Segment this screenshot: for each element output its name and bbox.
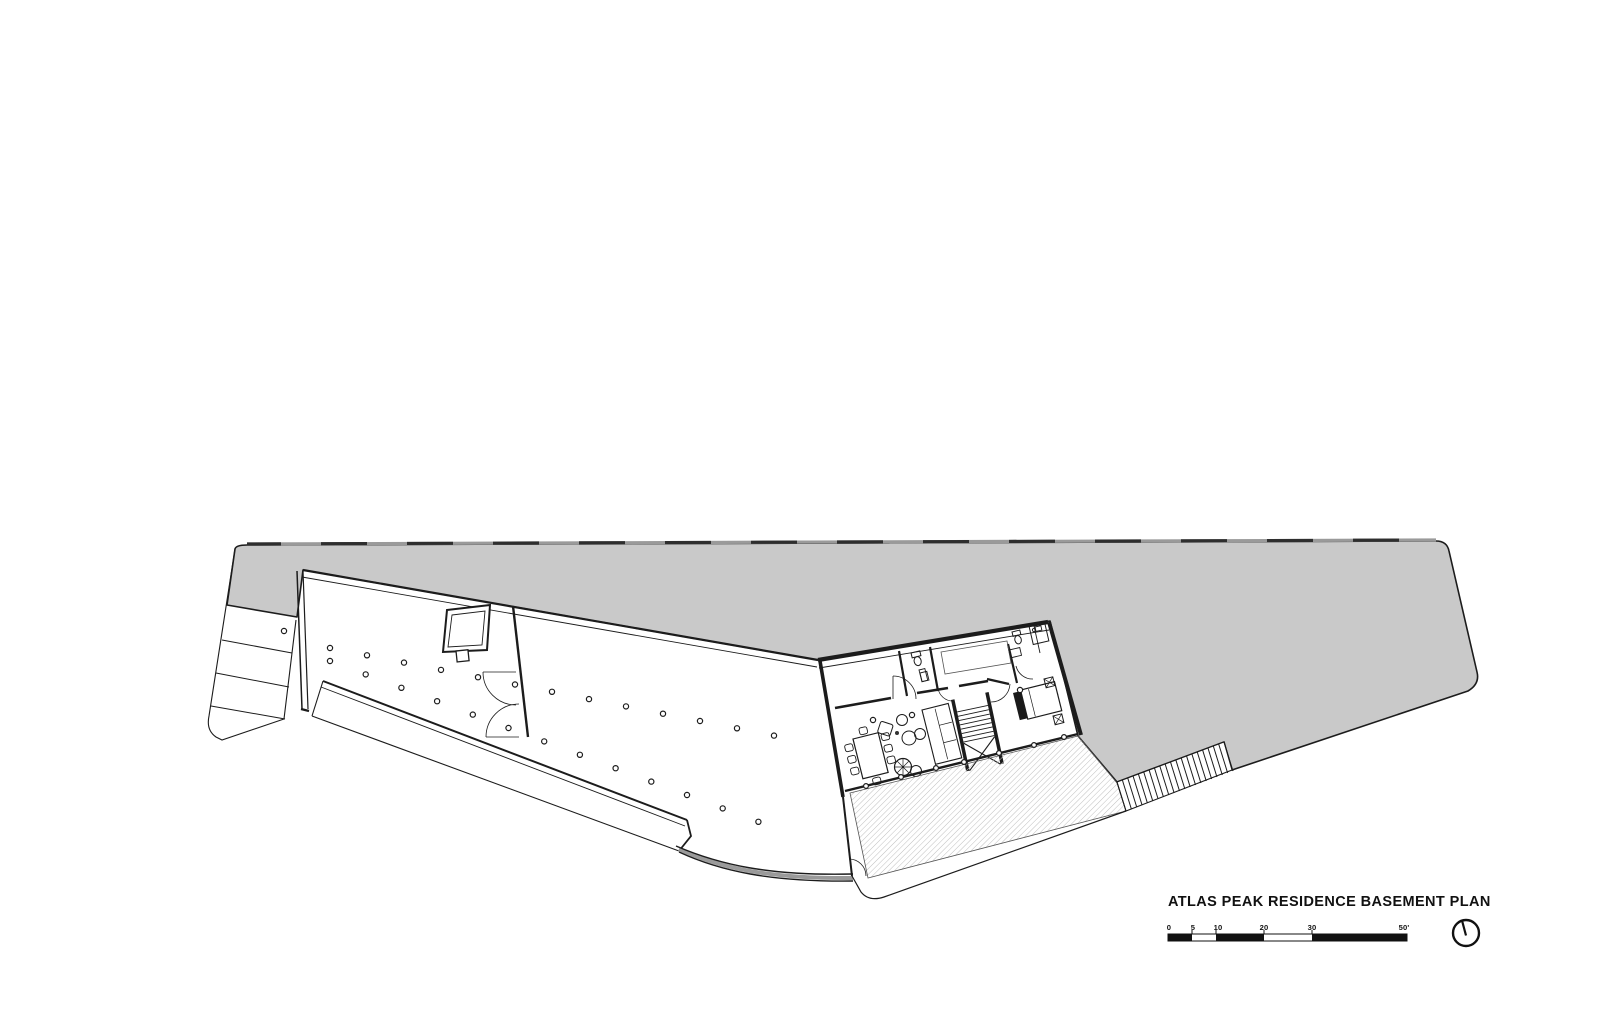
column-dot xyxy=(281,628,286,633)
column-dot xyxy=(586,697,591,702)
column-dot xyxy=(475,675,480,680)
column-dot xyxy=(771,733,776,738)
column-dot xyxy=(870,717,875,722)
living-left-wall xyxy=(820,661,843,797)
column-dot xyxy=(899,775,904,780)
scale-label-10: 10 xyxy=(1214,923,1223,932)
scale-label-5: 5 xyxy=(1191,923,1196,932)
column-dot xyxy=(470,712,475,717)
deck-left-wall xyxy=(843,797,852,876)
partition xyxy=(899,651,907,696)
scale-label-30: 30 xyxy=(1308,923,1317,932)
scale-bar: 0 5 10 20 30 50' xyxy=(1167,923,1410,941)
square-room xyxy=(443,605,490,662)
column-dot xyxy=(660,711,665,716)
floor-plan-drawing: ATLAS PEAK RESIDENCE BASEMENT PLAN 0 5 1… xyxy=(0,0,1600,1035)
column-dot xyxy=(1017,687,1022,692)
column-dot xyxy=(734,726,739,731)
column-dot xyxy=(363,672,368,677)
column-dot xyxy=(401,660,406,665)
column-dot xyxy=(613,766,618,771)
column-dot xyxy=(909,712,914,717)
toilet xyxy=(1012,630,1023,645)
column-dot xyxy=(542,739,547,744)
bench xyxy=(919,669,928,682)
column-dot xyxy=(506,725,511,730)
toilet xyxy=(911,651,923,667)
column-dot xyxy=(756,819,761,824)
curved-corner-wall xyxy=(676,846,853,881)
column-dot xyxy=(720,806,725,811)
column-dot xyxy=(997,751,1002,756)
column-dot xyxy=(399,685,404,690)
scale-label-50: 50' xyxy=(1399,923,1410,932)
terrace-line xyxy=(222,640,292,653)
dining-table xyxy=(853,733,888,779)
column-dot xyxy=(1062,735,1067,740)
corridor-wall xyxy=(835,676,988,708)
column-dot xyxy=(512,682,517,687)
column-dot xyxy=(327,658,332,663)
column-dot xyxy=(549,689,554,694)
closet-line xyxy=(1034,626,1040,653)
partition xyxy=(930,647,938,691)
terrace-line xyxy=(216,673,289,687)
column-dot xyxy=(438,667,443,672)
garage-left-wall-cap xyxy=(301,709,309,711)
column-dot xyxy=(327,645,332,650)
terrace-line xyxy=(211,706,285,719)
nightstand xyxy=(1053,714,1064,725)
basement-plan-sheet: ATLAS PEAK RESIDENCE BASEMENT PLAN 0 5 1… xyxy=(0,0,1600,1035)
drawing-title: ATLAS PEAK RESIDENCE BASEMENT PLAN xyxy=(1168,894,1491,910)
scale-label-20: 20 xyxy=(1260,923,1269,932)
column-dot xyxy=(623,704,628,709)
column-dot xyxy=(577,752,582,757)
garage-left-wall-inner xyxy=(303,571,308,709)
column-dot xyxy=(684,792,689,797)
bath2-door-arc xyxy=(1016,666,1033,679)
column-dot xyxy=(649,779,654,784)
title-block: ATLAS PEAK RESIDENCE BASEMENT PLAN 0 5 1… xyxy=(1167,894,1491,946)
column-dot xyxy=(697,718,702,723)
column-dot xyxy=(435,699,440,704)
column-dot xyxy=(1032,743,1037,748)
north-arrow-icon xyxy=(1453,920,1479,946)
ramp-retaining-wall xyxy=(312,681,691,851)
garage-divider-wall xyxy=(483,606,528,737)
column-dot xyxy=(364,653,369,658)
column-dot xyxy=(864,784,869,789)
closet-shelf xyxy=(1035,626,1042,632)
scale-label-0: 0 xyxy=(1167,923,1171,932)
column-dot xyxy=(934,766,939,771)
column-dot xyxy=(962,760,967,765)
